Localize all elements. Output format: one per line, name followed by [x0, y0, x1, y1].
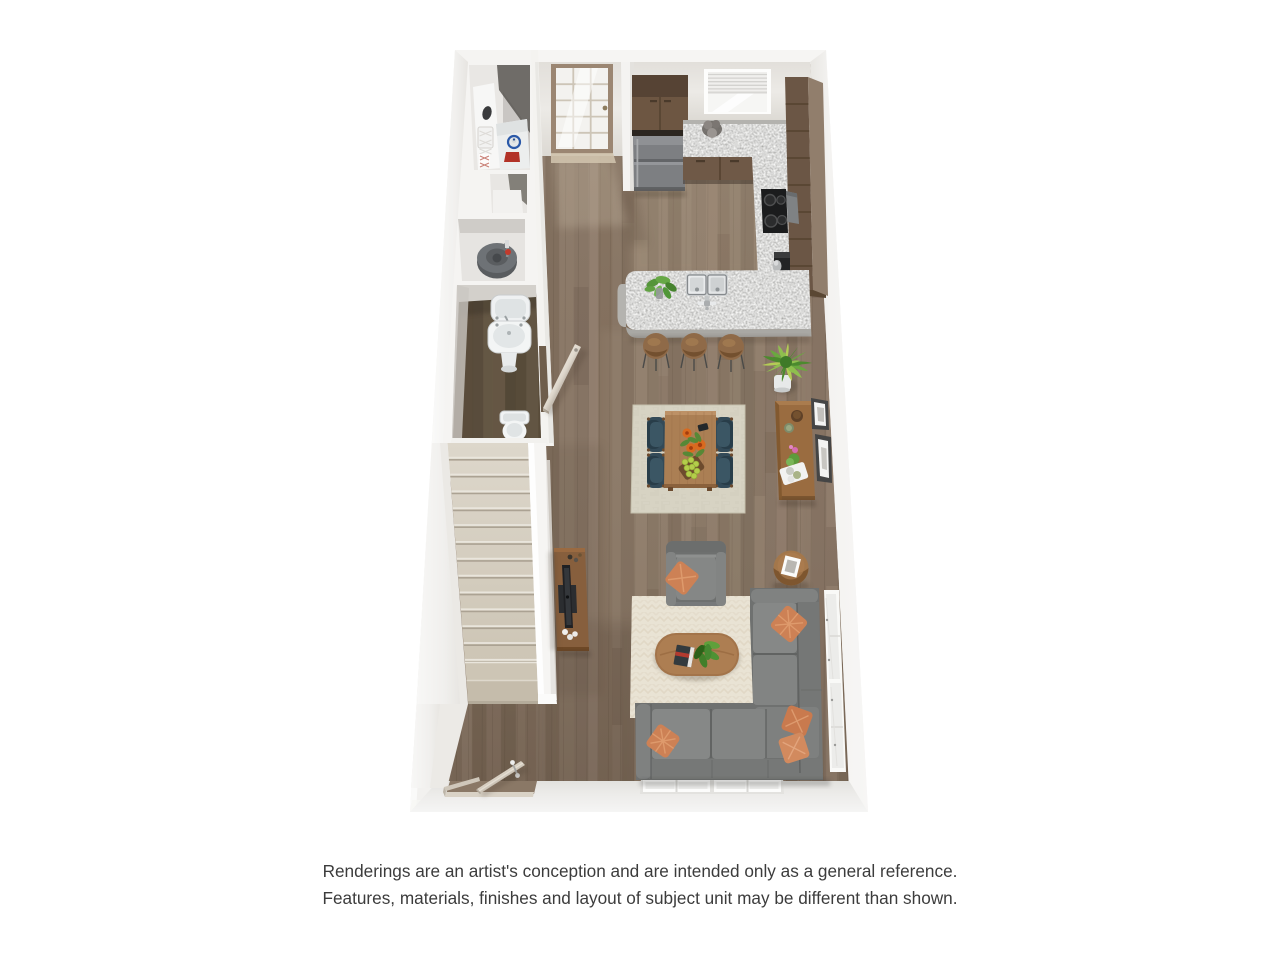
- svg-text:Renderings are an artist's con: Renderings are an artist's conception an…: [323, 861, 958, 881]
- svg-text:Features, materials, finishes: Features, materials, finishes and layout…: [322, 888, 957, 908]
